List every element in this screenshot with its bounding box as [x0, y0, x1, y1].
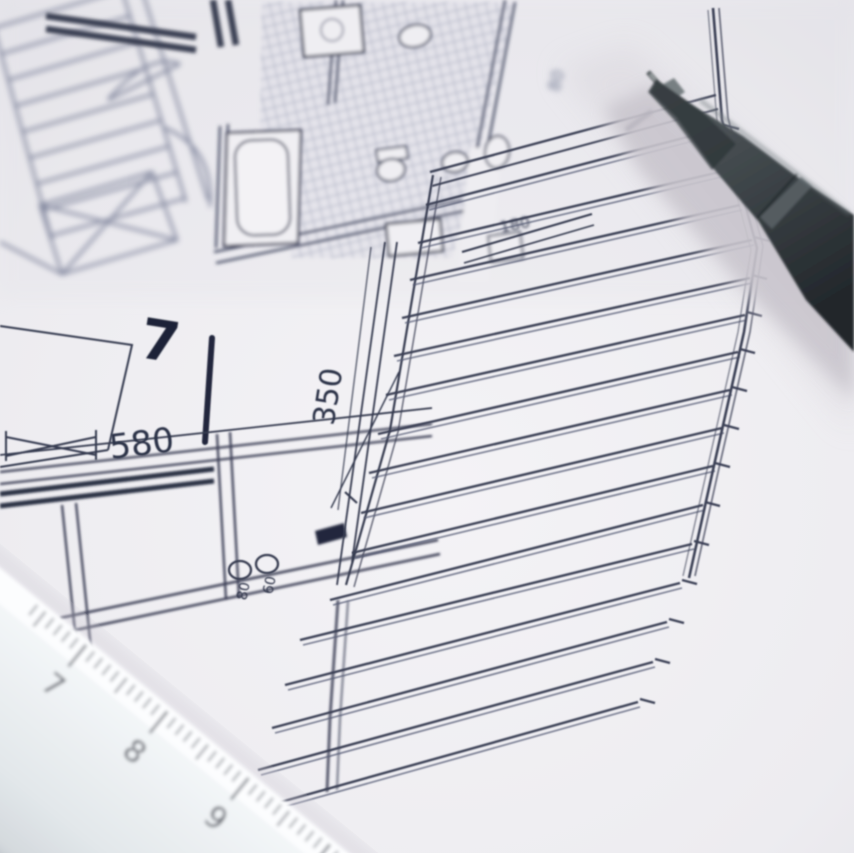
washer-box [300, 5, 364, 57]
shower-tray [386, 219, 443, 256]
photo-blueprint-desk: 80 [0, 0, 854, 853]
bathtub-basin [234, 139, 290, 236]
dimension-label-580: 580 [107, 420, 176, 468]
blueprint-scene: 80 [0, 0, 854, 853]
